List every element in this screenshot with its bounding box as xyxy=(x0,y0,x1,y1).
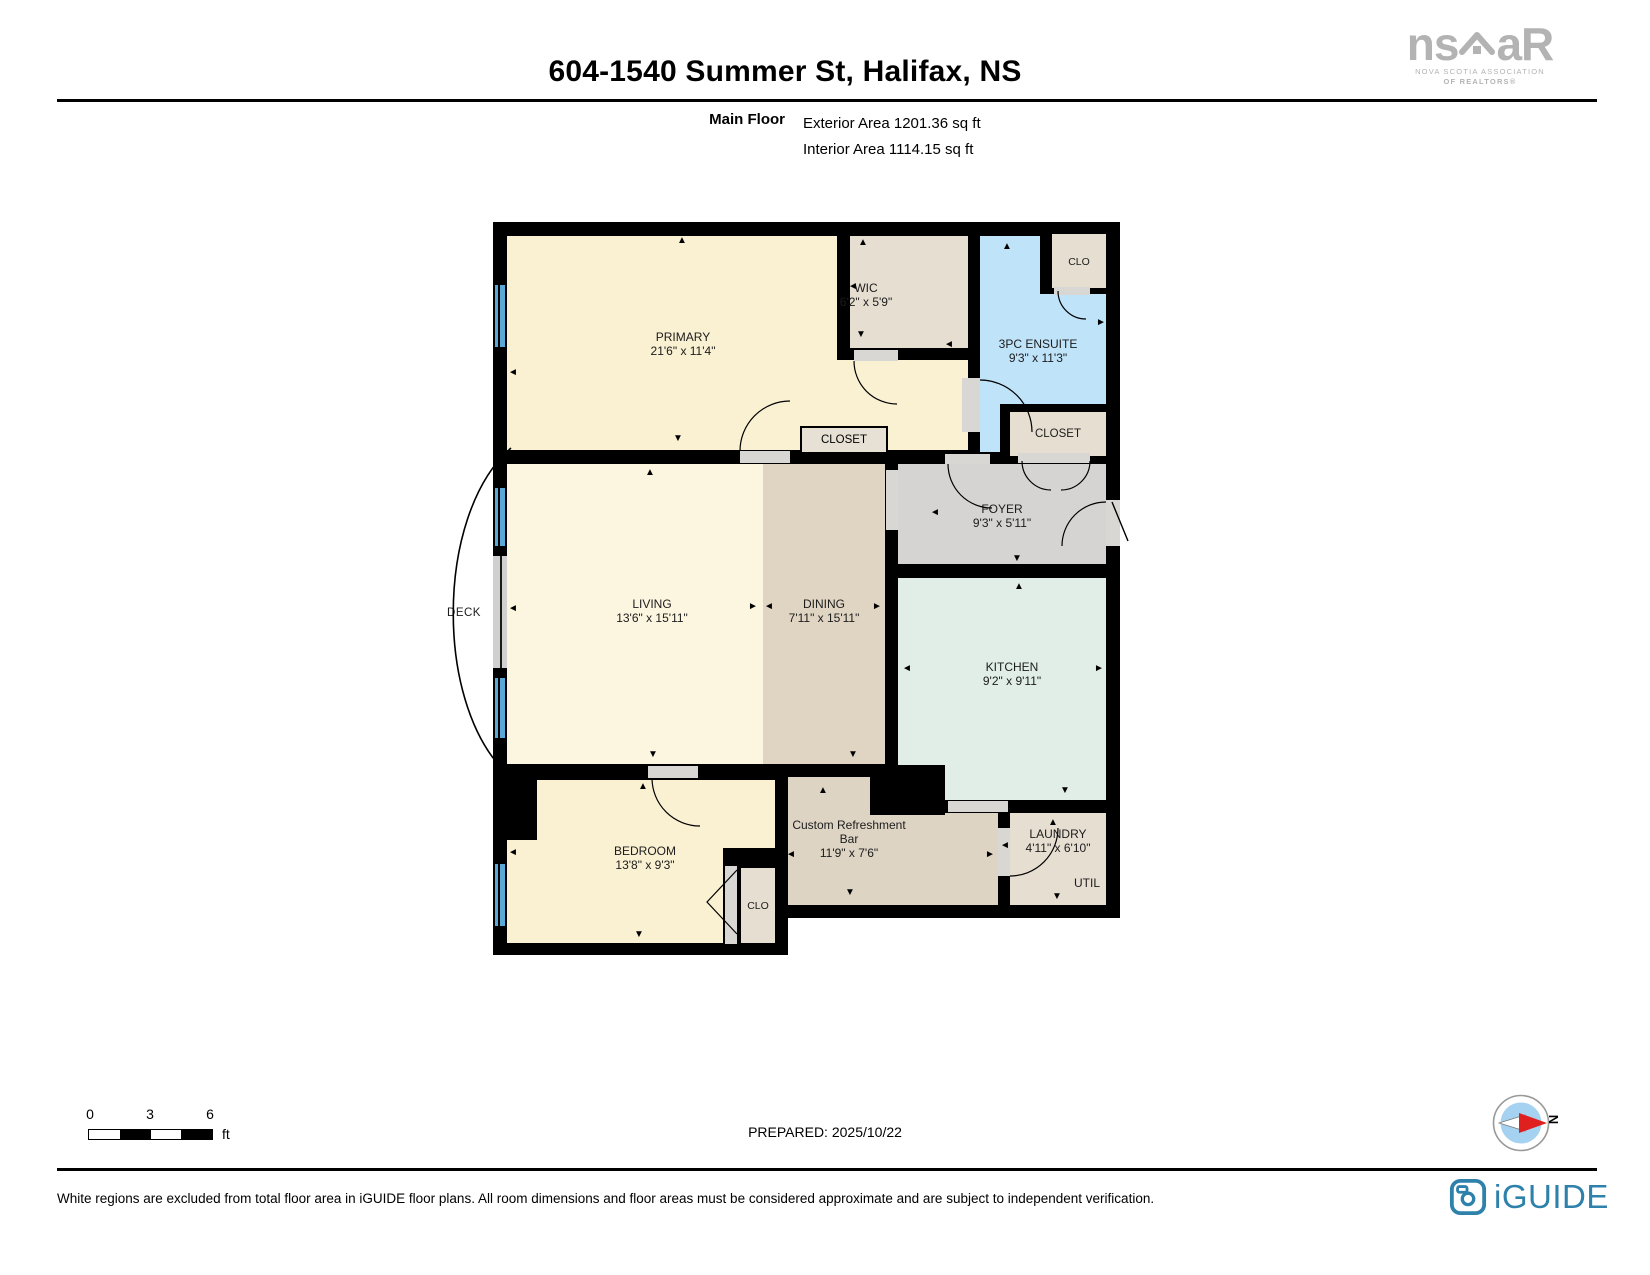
direction-arrow-icon: ▼ xyxy=(1052,892,1062,902)
doorway xyxy=(1054,287,1090,295)
header-divider xyxy=(57,99,1597,102)
page-title: 604-1540 Summer St, Halifax, NS xyxy=(0,55,1570,89)
iguide-wordmark: iGUIDE xyxy=(1494,1178,1609,1216)
room-label-foyer-closet: CLOSET xyxy=(1010,427,1106,441)
direction-arrow-icon: ▲ xyxy=(1048,818,1058,828)
interior-area: Interior Area 1114.15 sq ft xyxy=(803,137,981,163)
direction-arrow-icon: ► xyxy=(748,602,758,612)
direction-arrow-icon: ► xyxy=(872,602,882,612)
direction-arrow-icon: ◄ xyxy=(508,848,518,858)
scale-tick: 6 xyxy=(206,1106,214,1122)
direction-arrow-icon: ◄ xyxy=(848,282,858,292)
doorway xyxy=(854,350,898,361)
compass-north-label: N xyxy=(1546,1115,1561,1124)
direction-arrow-icon: ◄ xyxy=(786,850,796,860)
direction-arrow-icon: ▲ xyxy=(1002,242,1012,252)
iguide-camera-icon xyxy=(1449,1178,1487,1216)
direction-arrow-icon: ◄ xyxy=(930,508,940,518)
direction-arrow-icon: ▼ xyxy=(848,750,858,760)
direction-arrow-icon: ▼ xyxy=(856,330,866,340)
doorway xyxy=(945,454,990,464)
room-label-kitchen: KITCHEN 9'2" x 9'11" xyxy=(932,660,1092,688)
plan-cutout xyxy=(788,918,1120,955)
sliding-door-icon xyxy=(493,556,507,668)
compass-icon xyxy=(1492,1092,1554,1156)
room-label-wic: WIC 6'2" x 5'9" xyxy=(816,281,916,309)
direction-arrow-icon: ▲ xyxy=(1014,582,1024,592)
nsar-logo-text-right: aR xyxy=(1496,24,1553,64)
direction-arrow-icon: ◄ xyxy=(508,368,518,378)
room-label-foyer: FOYER 9'3" x 5'11" xyxy=(922,502,1082,530)
nsar-logo: ns aR NOVA SCOTIA ASSOCIATION OF REALTOR… xyxy=(1375,24,1585,87)
direction-arrow-icon: ◄ xyxy=(944,340,954,350)
doorway xyxy=(948,801,1008,812)
doorway xyxy=(740,451,790,463)
direction-arrow-icon: ▼ xyxy=(648,750,658,760)
direction-arrow-icon: ▲ xyxy=(677,236,687,246)
room-label-bedroom-clo: CLO xyxy=(741,899,775,913)
direction-arrow-icon: ▲ xyxy=(638,782,648,792)
nsar-house-icon xyxy=(1459,30,1495,60)
wall-notch xyxy=(507,780,537,840)
room-label-bar: Custom Refreshment Bar 11'9" x 7'6" xyxy=(784,818,914,860)
nsar-logo-text-left: ns xyxy=(1407,24,1459,64)
direction-arrow-icon: ◄ xyxy=(764,602,774,612)
floorplan-page: 604-1540 Summer St, Halifax, NS Main Flo… xyxy=(0,0,1650,1275)
room-label-bedroom: BEDROOM 13'8" x 9'3" xyxy=(545,844,745,872)
nsar-subtitle-2: OF REALTORS® xyxy=(1375,77,1585,87)
exterior-area: Exterior Area 1201.36 sq ft xyxy=(803,111,981,137)
direction-arrow-icon: ◄ xyxy=(508,604,518,614)
doorway xyxy=(1018,453,1090,463)
doorway xyxy=(962,378,980,432)
doorway xyxy=(886,470,898,530)
direction-arrow-icon: ◄ xyxy=(902,664,912,674)
disclaimer-text: White regions are excluded from total fl… xyxy=(57,1191,1357,1206)
prepared-date: PREPARED: 2025/10/22 xyxy=(0,1124,1650,1140)
direction-arrow-icon: ▼ xyxy=(634,930,644,940)
doorway xyxy=(725,866,737,944)
window-icon xyxy=(493,488,507,546)
direction-arrow-icon: ► xyxy=(756,850,766,860)
room-label-clo-top: CLO xyxy=(1049,255,1109,269)
room-primary-closet: CLOSET xyxy=(800,426,888,454)
direction-arrow-icon: ► xyxy=(985,850,995,860)
direction-arrow-icon: ◄ xyxy=(1000,841,1010,851)
direction-arrow-icon: ▼ xyxy=(673,434,683,444)
direction-arrow-icon: ► xyxy=(1096,318,1106,328)
direction-arrow-icon: ▲ xyxy=(818,786,828,796)
scale-tick: 0 xyxy=(86,1106,94,1122)
doorway-entry xyxy=(1106,500,1120,546)
area-summary: Exterior Area 1201.36 sq ft Interior Are… xyxy=(803,111,981,163)
window-icon xyxy=(493,864,507,926)
direction-arrow-icon: ▲ xyxy=(645,468,655,478)
footer-divider xyxy=(57,1168,1597,1171)
direction-arrow-icon: ▼ xyxy=(845,888,855,898)
room-label-primary: PRIMARY 21'6" x 11'4" xyxy=(583,330,783,358)
direction-arrow-icon: ▲ xyxy=(858,238,868,248)
room-label-ensuite: 3PC ENSUITE 9'3" x 11'3" xyxy=(958,337,1118,365)
room-label-deck: DECK xyxy=(434,606,494,620)
wall-block xyxy=(870,765,945,815)
iguide-logo: iGUIDE xyxy=(1449,1178,1609,1216)
closet-label: CLOSET xyxy=(821,434,867,446)
direction-arrow-icon: ▼ xyxy=(1012,554,1022,564)
doorway xyxy=(648,766,698,778)
room-label-util: UTIL xyxy=(1048,876,1100,890)
floor-label: Main Floor xyxy=(0,111,785,128)
room-label-laundry: LAUNDRY 4'11" x 6'10" xyxy=(998,827,1118,855)
window-icon xyxy=(493,285,507,347)
room-label-living: LIVING 13'6" x 15'11" xyxy=(552,597,752,625)
window-icon xyxy=(493,678,507,738)
direction-arrow-icon: ▼ xyxy=(1060,786,1070,796)
scale-tick: 3 xyxy=(146,1106,154,1122)
direction-arrow-icon: ► xyxy=(1094,664,1104,674)
